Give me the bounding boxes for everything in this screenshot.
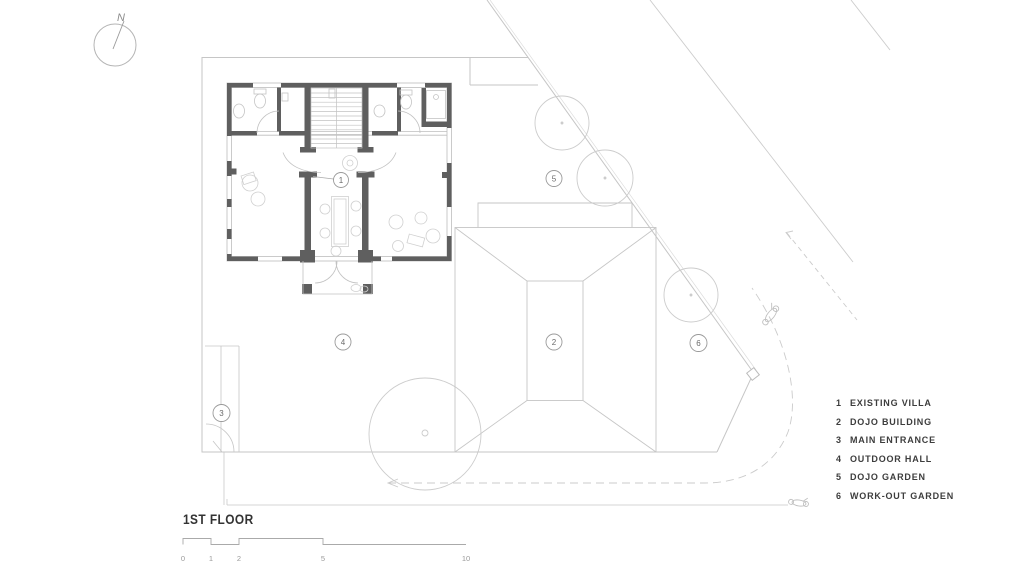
road-center-dashed (787, 233, 857, 320)
bath-fixtures (234, 89, 446, 119)
legend-num: 3 (836, 436, 850, 445)
marker-2: 2 (546, 334, 562, 350)
marker-5-label: 5 (552, 175, 557, 184)
armchair (415, 212, 427, 224)
ceiling-fan-hub (347, 160, 353, 166)
tree-center-dot (604, 177, 606, 179)
legend-item-dojo-building: 2 DOJO BUILDING (836, 418, 954, 427)
chair (351, 201, 361, 211)
street-lines (224, 452, 788, 505)
chair (351, 226, 361, 236)
drive-path-curve (388, 288, 793, 483)
porch-sketch (351, 285, 361, 292)
ceiling-fan (343, 156, 358, 171)
legend-label: OUTDOOR HALL (850, 455, 932, 464)
marker-6-label: 6 (696, 339, 701, 348)
north-indicator: N (94, 12, 136, 66)
dojo-roof (455, 203, 656, 452)
dojo-hip-line (583, 228, 656, 282)
site-boundary (202, 0, 759, 452)
legend-item-outdoor-hall: 4 OUTDOOR HALL (836, 455, 954, 464)
porch-door-left-arc (315, 261, 337, 283)
scale-tick-2: 2 (237, 554, 241, 563)
armchair (251, 192, 265, 206)
villa-walls (227, 83, 452, 294)
legend: 1 EXISTING VILLA 2 DOJO BUILDING 3 MAIN … (836, 399, 954, 511)
legend-item-dojo-garden: 5 DOJO GARDEN (836, 473, 954, 482)
legend-num: 6 (836, 492, 850, 501)
north-label: N (117, 12, 125, 24)
site-boundary-corner (717, 374, 753, 452)
legend-num: 4 (836, 455, 850, 464)
armchair (393, 241, 404, 252)
legend-label: WORK-OUT GARDEN (850, 492, 954, 501)
shower-drain (434, 95, 439, 100)
bath-left-door-arc (257, 111, 279, 133)
scale-tick-5: 5 (321, 554, 325, 563)
armchair (389, 215, 403, 229)
dojo-hip-line (455, 228, 527, 282)
gate-swing-arc (206, 424, 234, 452)
porch (303, 261, 372, 294)
north-needle (113, 21, 124, 49)
villa-inner-line (232, 88, 448, 257)
chair (320, 204, 330, 214)
toilet-bowl (401, 95, 412, 109)
boundary-marker (747, 368, 760, 381)
scale-tick-10: 10 (462, 554, 470, 563)
hall-arch-left (283, 153, 321, 173)
villa-outer-line (227, 83, 452, 261)
marker-2-label: 2 (552, 338, 557, 347)
armchair (426, 229, 440, 243)
road-lines (650, 0, 890, 320)
scooter-sketch (758, 302, 780, 326)
dojo-portico (478, 203, 632, 228)
toilet-tank (400, 90, 412, 95)
marker-4-label: 4 (341, 338, 346, 347)
trees (369, 96, 718, 490)
dojo-hip-line (583, 401, 656, 453)
porch-outline (303, 261, 372, 294)
road-edge-line-2 (851, 0, 890, 50)
wall-fixture (329, 89, 335, 98)
marker-5: 5 (546, 171, 562, 187)
scale-bar: 0 1 2 5 10 (181, 539, 470, 564)
tree-center-circle (422, 430, 428, 436)
toilet-bowl (255, 94, 266, 108)
dojo-hip-line (455, 401, 527, 453)
chair (320, 228, 330, 238)
scale-tick-1: 1 (209, 554, 213, 563)
wall-fixture (282, 93, 288, 101)
sink (234, 104, 245, 118)
legend-label: MAIN ENTRANCE (850, 436, 936, 445)
bath-right-door-arc (398, 111, 420, 133)
marker-3-label: 3 (219, 409, 224, 418)
legend-label: EXISTING VILLA (850, 399, 932, 408)
sink (374, 105, 385, 117)
legend-item-work-out-garden: 6 WORK-OUT GARDEN (836, 492, 954, 501)
staircase (311, 88, 362, 148)
legend-label: DOJO BUILDING (850, 418, 932, 427)
tree-circle-large (369, 378, 481, 490)
page-title: 1ST FLOOR (183, 512, 254, 527)
marker-3: 3 (213, 405, 230, 422)
floor-plan-sheet: N (0, 0, 1024, 576)
coffee-table (407, 234, 425, 247)
porch-door-right-arc (336, 261, 358, 283)
chair (331, 246, 341, 256)
legend-num: 1 (836, 399, 850, 408)
scooter-sketch (788, 496, 809, 508)
legend-item-existing-villa: 1 EXISTING VILLA (836, 399, 954, 408)
marker-6: 6 (690, 335, 707, 352)
toilet-tank (254, 89, 266, 94)
road-arrow-head (786, 231, 793, 239)
legend-item-main-entrance: 3 MAIN ENTRANCE (836, 436, 954, 445)
villa-thin-outline (227, 83, 452, 261)
marker-4: 4 (335, 334, 351, 350)
tree-center-dot (690, 294, 692, 296)
site-boundary-diagonal-2 (490, 0, 756, 370)
road-edge-line (650, 0, 853, 262)
entrance-walkway (205, 346, 239, 452)
marker-1: 1 (313, 173, 349, 188)
hall-arch-right (358, 153, 396, 173)
drive-path (388, 288, 793, 487)
dining-table-inner (334, 199, 346, 244)
marker-1-label: 1 (339, 176, 344, 185)
scale-tick-0: 0 (181, 554, 185, 563)
legend-num: 2 (836, 418, 850, 427)
scale-bar-profile (183, 539, 466, 545)
legend-num: 5 (836, 473, 850, 482)
legend-label: DOJO GARDEN (850, 473, 926, 482)
tree-center-dot (561, 122, 563, 124)
